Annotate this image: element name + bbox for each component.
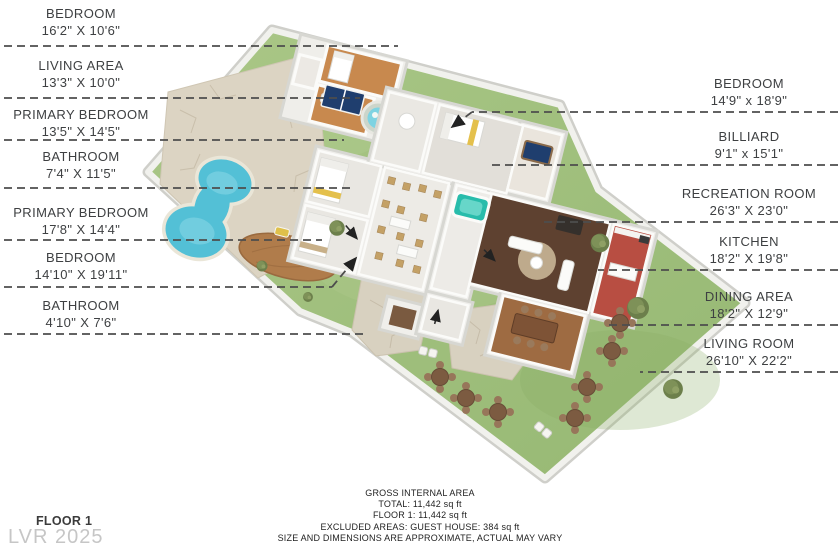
room-dims: 7'4" X 11'5" [46, 166, 116, 183]
room-dims: 13'3" X 10'0" [42, 75, 121, 92]
room-label: BEDROOM 16'2" X 10'6" [0, 6, 162, 39]
room-label: BEDROOM 14'9" x 18'9" [660, 76, 838, 109]
area-title: GROSS INTERNAL AREA [0, 488, 840, 499]
room-name: LIVING ROOM [703, 336, 794, 353]
area-disclaimer: SIZE AND DIMENSIONS ARE APPROXIMATE, ACT… [0, 533, 840, 544]
entry-floor [421, 296, 469, 341]
room-name: BATHROOM [42, 298, 119, 315]
room-dims: 9'1" x 15'1" [715, 146, 784, 163]
room-name: BEDROOM [46, 6, 116, 23]
area-total: TOTAL: 11,442 sq ft [0, 499, 840, 510]
room-name: LIVING AREA [38, 58, 123, 75]
room-label: BATHROOM 7'4" X 11'5" [0, 149, 162, 182]
room-label: LIVING ROOM 26'10" X 22'2" [660, 336, 838, 369]
room-name: DINING AREA [705, 289, 793, 306]
room-dims: 17'8" X 14'4" [42, 222, 121, 239]
room-dims: 14'9" x 18'9" [711, 93, 788, 110]
room-dims: 13'5" X 14'5" [42, 124, 121, 141]
floorplan-image: BEDROOM 16'2" X 10'6" LIVING AREA 13'3" … [0, 0, 840, 560]
room-name: PRIMARY BEDROOM [13, 107, 149, 124]
room-label: LIVING AREA 13'3" X 10'0" [0, 58, 162, 91]
room-label: BEDROOM 14'10" X 19'11" [0, 250, 162, 283]
room-dims: 14'10" X 19'11" [35, 267, 128, 284]
room-name: PRIMARY BEDROOM [13, 205, 149, 222]
room-name: KITCHEN [719, 234, 779, 251]
room-label: RECREATION ROOM 26'3" X 23'0" [660, 186, 838, 219]
room-name: BEDROOM [46, 250, 116, 267]
room-name: BATHROOM [42, 149, 119, 166]
room-label: PRIMARY BEDROOM 17'8" X 14'4" [0, 205, 162, 238]
guest-bath-floor [293, 55, 323, 90]
area-excluded: EXCLUDED AREAS: GUEST HOUSE: 384 sq ft [0, 522, 840, 533]
room-label: DINING AREA 18'2" X 12'9" [660, 289, 838, 322]
area-floor1: FLOOR 1: 11,442 sq ft [0, 510, 840, 521]
room-label: BILLIARD 9'1" x 15'1" [660, 129, 838, 162]
room-label: KITCHEN 18'2" X 19'8" [660, 234, 838, 267]
room-name: BEDROOM [714, 76, 784, 93]
room-dims: 16'2" X 10'6" [42, 23, 121, 40]
room-name: RECREATION ROOM [682, 186, 816, 203]
room-dims: 18'2" X 19'8" [710, 251, 789, 268]
room-dims: 26'10" X 22'2" [706, 353, 792, 370]
room-label: PRIMARY BEDROOM 13'5" X 14'5" [0, 107, 162, 140]
area-summary: GROSS INTERNAL AREA TOTAL: 11,442 sq ft … [0, 488, 840, 544]
watermark: LVR 2025 [8, 526, 103, 549]
room-dims: 4'10" X 7'6" [45, 315, 116, 332]
room-name: BILLIARD [718, 129, 779, 146]
room-dims: 26'3" X 23'0" [710, 203, 789, 220]
room-dims: 18'2" X 12'9" [710, 306, 789, 323]
room-label: BATHROOM 4'10" X 7'6" [0, 298, 162, 331]
